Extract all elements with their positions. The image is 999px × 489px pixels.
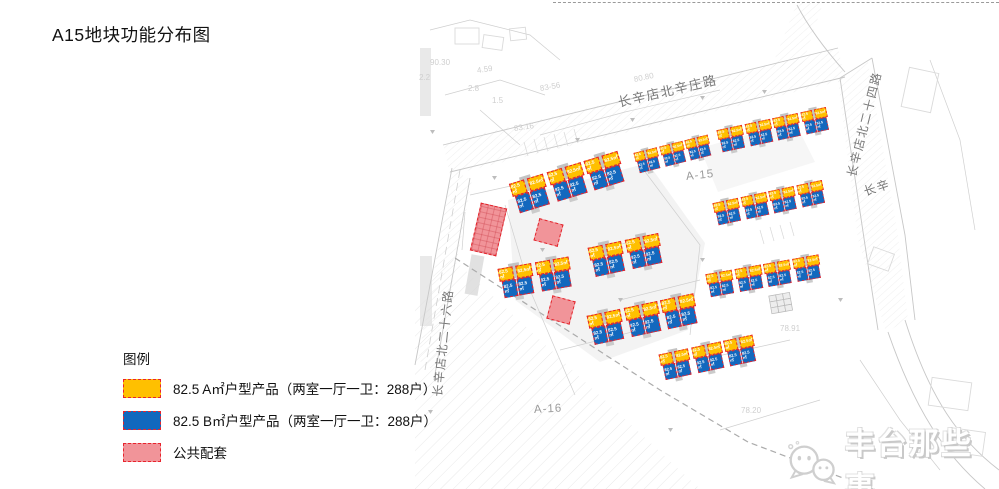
unit-b-block: 82.5㎡ (811, 190, 825, 205)
page-title: A15地块功能分布图 (52, 22, 211, 47)
unit-b-block: 82.5㎡ (517, 276, 535, 295)
elevation-label: 78.91 (780, 324, 800, 333)
legend-item-type-a: 82.5 A㎡户型产品（两室一厅一卫：288户） (123, 378, 437, 398)
top-boundary-dashed-line (553, 2, 999, 3)
unit-b-block: 82.5㎡ (679, 306, 697, 326)
unit-b-block: 82.5㎡ (807, 265, 821, 280)
elevation-label: 1.5 (492, 96, 503, 105)
legend-item-public: 公共配套 (123, 442, 437, 462)
building: 82.5㎡82.5㎡82.5㎡82.5㎡ (658, 346, 694, 384)
building: 82.5㎡82.5㎡82.5㎡82.5㎡ (624, 230, 665, 273)
legend-label-type-b: 82.5 B㎡户型产品（两室一厅一卫：288户） (161, 410, 437, 430)
legend: 图例 82.5 A㎡户型产品（两室一厅一卫：288户） 82.5 B㎡户型产品（… (123, 348, 437, 474)
legend-swatch-type-b (123, 411, 161, 430)
building: 82.5㎡82.5㎡82.5㎡82.5㎡ (633, 145, 662, 176)
unit-b-block: 82.5㎡ (607, 254, 625, 274)
slide-canvas: A15地块功能分布图 图例 82.5 A㎡户型产品（两室一厅一卫：288户） 8… (0, 0, 999, 489)
unit-b-block: 82.5㎡ (676, 360, 692, 377)
building: 82.5㎡82.5㎡82.5㎡82.5㎡ (659, 290, 700, 333)
unit-b-block: 82.5㎡ (673, 150, 686, 164)
building: 82.5㎡82.5㎡82.5㎡82.5㎡ (772, 111, 803, 144)
building: 82.5㎡82.5㎡82.5㎡82.5㎡ (744, 117, 775, 150)
building: 82.5㎡82.5㎡82.5㎡82.5㎡ (791, 252, 822, 285)
unit-b-block: 82.5㎡ (759, 129, 773, 144)
elevation-label: 78.20 (741, 406, 761, 415)
building: 82.5㎡82.5㎡82.5㎡82.5㎡ (690, 339, 726, 377)
unit-b-block: 82.5㎡ (731, 135, 745, 150)
building: 82.5㎡82.5㎡82.5㎡82.5㎡ (534, 254, 574, 296)
building: 82.5㎡82.5㎡82.5㎡82.5㎡ (800, 105, 831, 138)
unit-b-block: 82.5㎡ (783, 196, 797, 211)
building: 82.5㎡82.5㎡82.5㎡82.5㎡ (716, 123, 747, 156)
unit-b-block: 82.5㎡ (647, 156, 660, 170)
unit-b-block: 82.5㎡ (740, 346, 756, 363)
unit-b-block: 82.5㎡ (539, 272, 556, 291)
unit-b-block: 82.5㎡ (644, 246, 662, 266)
unit-b-block: 82.5㎡ (815, 117, 829, 132)
building: 82.5㎡82.5㎡82.5㎡82.5㎡ (658, 139, 687, 170)
building: 82.5㎡82.5㎡82.5㎡82.5㎡ (684, 133, 713, 164)
building: 82.5㎡82.5㎡82.5㎡82.5㎡ (583, 148, 628, 195)
unit-b-block: 82.5㎡ (698, 144, 711, 158)
unit-b-block: 82.5㎡ (749, 275, 763, 290)
legend-heading: 图例 (123, 348, 437, 368)
unit-b-block: 82.5㎡ (755, 202, 769, 217)
elevation-label: 90.30 (430, 58, 450, 67)
parcel-label-a16: A-16 (534, 403, 563, 416)
unit-b-block: 82.5㎡ (708, 353, 724, 370)
legend-label-type-a: 82.5 A㎡户型产品（两室一厅一卫：288户） (161, 378, 436, 398)
building: 82.5㎡82.5㎡82.5㎡82.5㎡ (587, 238, 628, 281)
building: 82.5㎡82.5㎡82.5㎡82.5㎡ (545, 159, 590, 206)
legend-label-public: 公共配套 (161, 442, 227, 462)
legend-swatch-public (123, 443, 161, 462)
legend-swatch-type-a (123, 379, 161, 398)
elevation-label: 2.8 (468, 84, 479, 93)
legend-item-type-b: 82.5 B㎡户型产品（两室一厅一卫：288户） (123, 410, 437, 430)
wechat-bubbles-icon (783, 438, 839, 488)
elevation-label: 2.2 (419, 73, 430, 82)
unit-b-block: 82.5㎡ (643, 314, 661, 334)
building: 82.5㎡82.5㎡82.5㎡82.5㎡ (723, 332, 759, 370)
building: 82.5㎡82.5㎡82.5㎡82.5㎡ (796, 178, 827, 211)
unit-b-block: 82.5㎡ (778, 270, 792, 285)
unit-b-block: 82.5㎡ (502, 279, 519, 298)
watermark-text: 丰台那些事 (845, 419, 999, 489)
building: 82.5㎡82.5㎡82.5㎡82.5㎡ (623, 298, 664, 341)
unit-b-block: 82.5㎡ (553, 270, 571, 289)
watermark: 丰台那些事 (783, 419, 999, 489)
building: 82.5㎡82.5㎡82.5㎡82.5㎡ (586, 306, 627, 349)
unit-b-block: 82.5㎡ (606, 322, 624, 342)
unit-b-block: 82.5㎡ (787, 123, 801, 138)
building: 82.5㎡82.5㎡82.5㎡82.5㎡ (497, 260, 537, 302)
building: 82.5㎡82.5㎡82.5㎡82.5㎡ (768, 184, 799, 217)
building: 82.5㎡82.5㎡82.5㎡82.5㎡ (763, 257, 794, 290)
